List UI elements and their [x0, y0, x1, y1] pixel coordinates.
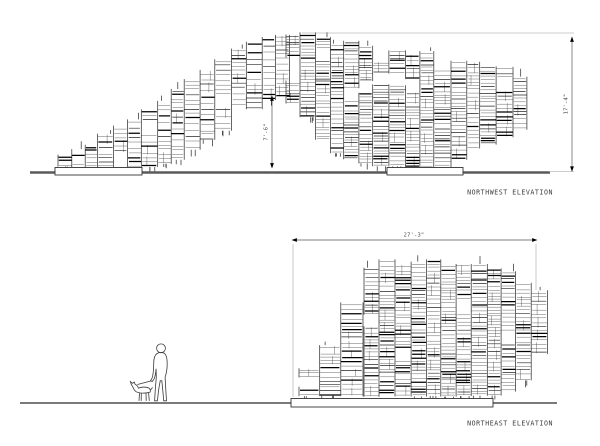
nw-left-plinth: [55, 168, 142, 176]
nw-arch-structure-lines-thin: [59, 36, 290, 166]
nw-mid-plinth: [387, 168, 463, 176]
nw-arch-structure: [58, 35, 290, 174]
ne-left-structure-lines-thin: [299, 305, 363, 396]
ne-plinth: [291, 399, 493, 408]
ne-mass-structure-lines-dark: [364, 262, 547, 393]
drawing-sheet: 17'-4" 7'-6" NORTHWEST ELEVATION 27'-3": [0, 0, 600, 446]
nw-dimension-right: 17'-4": [302, 33, 574, 172]
northwest-elevation-drawing: 17'-4" 7'-6" NORTHWEST ELEVATION: [30, 32, 574, 196]
nw-elevation-title: NORTHWEST ELEVATION: [467, 189, 553, 197]
nw-mass-structure-lines-med: [286, 32, 527, 174]
nw-arch-structure-lines-med: [58, 35, 290, 174]
ne-left-structure-lines-dark: [300, 314, 363, 395]
scale-figure-leash: [138, 381, 151, 385]
ne-left-structure-lines-med: [299, 302, 363, 403]
ne-mass-structure: [364, 255, 547, 403]
scale-figure-person-head: [157, 344, 166, 353]
scale-figure: [130, 344, 167, 401]
nw-mass-structure: [286, 32, 527, 174]
ne-elevation-title: NORTHEAST ELEVATION: [467, 420, 553, 428]
scale-figure-dog: [130, 382, 150, 393]
nw-dim-right-label: 17'-4": [564, 94, 570, 115]
nw-mass-structure-lines-thin: [286, 36, 527, 167]
nw-dimension-mid: 7'-6": [264, 96, 274, 169]
nw-dim-mid-label: 7'-6": [264, 123, 270, 140]
ne-left-structure: [299, 302, 363, 403]
scale-figure-dog-legs: [139, 387, 153, 401]
northeast-elevation-drawing: 27'-3" NORTHEAST ELEVATION: [20, 233, 557, 428]
scale-figure-person-body: [151, 352, 168, 400]
ne-mass-structure-lines-thin: [364, 261, 547, 396]
ne-dim-width-label: 27'-3": [404, 233, 425, 239]
elevation-drawings-svg: 17'-4" 7'-6" NORTHWEST ELEVATION 27'-3": [0, 0, 600, 446]
